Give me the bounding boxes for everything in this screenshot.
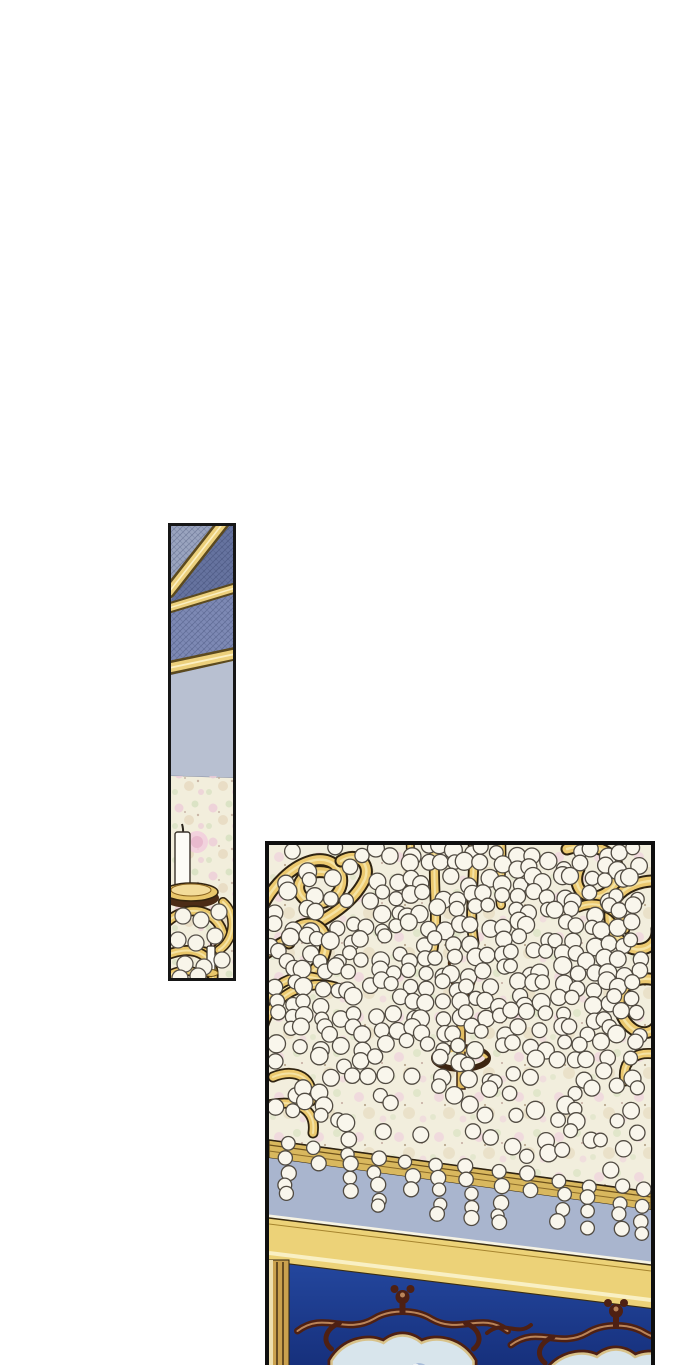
page-background [0, 0, 690, 1365]
panel-chandelier [265, 841, 655, 1365]
chandelier-illustration [269, 845, 651, 1365]
ceiling-strip-illustration [171, 526, 233, 978]
panel-ceiling-strip [168, 523, 236, 981]
